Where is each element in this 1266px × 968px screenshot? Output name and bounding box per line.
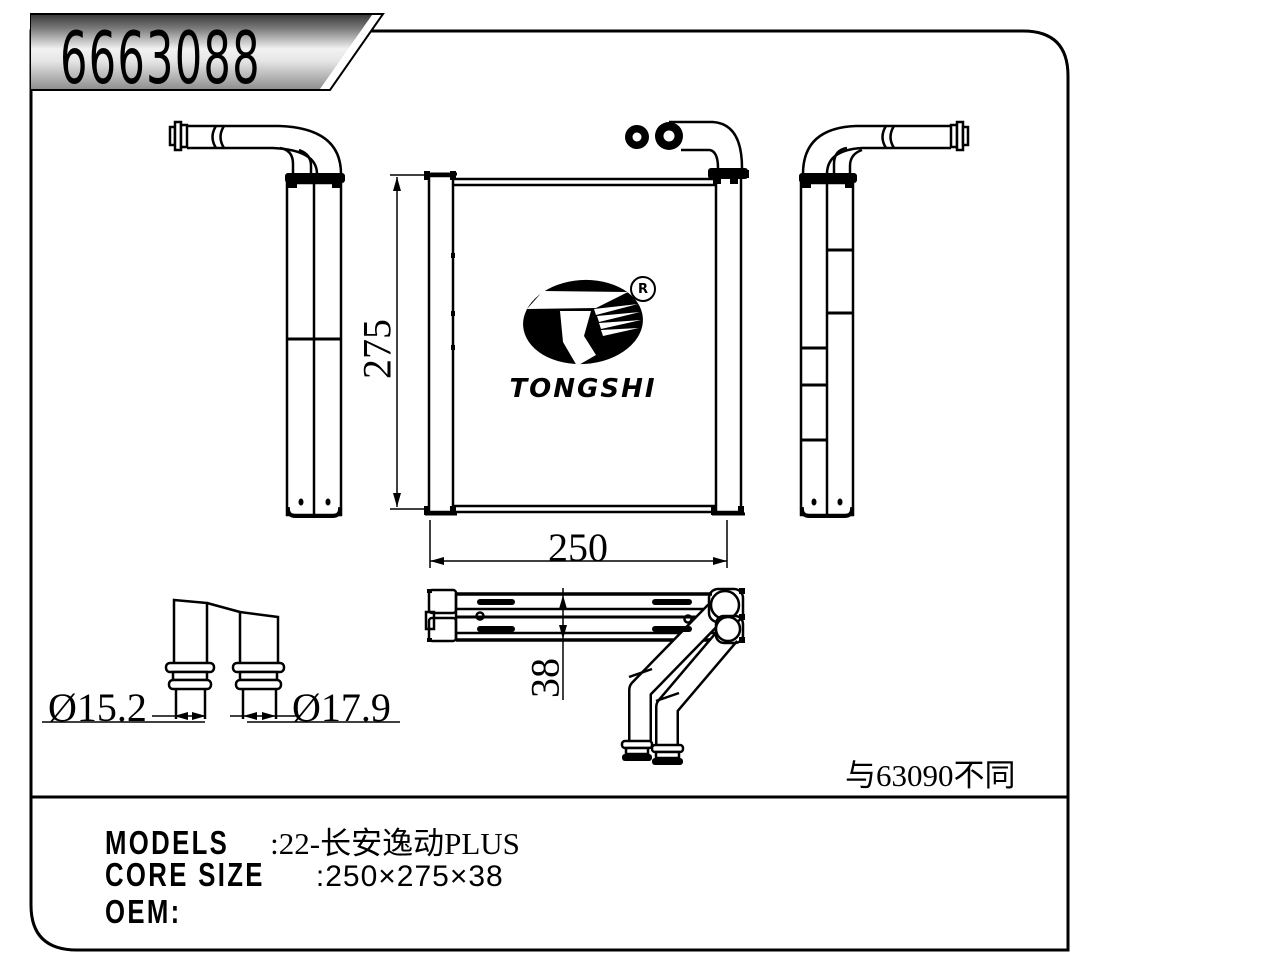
pipe-detail-view [166, 600, 284, 719]
drawing-border [31, 31, 1068, 950]
front-view [424, 122, 749, 515]
tongshi-logo-mark [520, 276, 646, 368]
spec-core-size-line: CORE SIZE :250×275×38 [105, 856, 504, 894]
dimension-core-depth: 38 [522, 658, 569, 698]
tongshi-wordmark: TONGSHI [505, 374, 661, 404]
spec-oem-line: OEM: [105, 893, 203, 931]
dimension-pipe-small: Ø15.2 [48, 684, 147, 731]
core-size-label: CORE SIZE [105, 856, 265, 894]
side-view-right [799, 122, 968, 516]
oem-label: OEM: [105, 893, 182, 931]
dimension-core-height: 275 [354, 319, 401, 379]
drawing-page: 6663088 275 250 38 Ø15.2 Ø17.9 与63090不同 … [0, 0, 1266, 968]
side-view-left [170, 122, 345, 516]
dimension-core-width: 250 [538, 524, 618, 571]
difference-note: 与63090不同 [845, 750, 1016, 795]
dimension-pipe-large: Ø17.9 [292, 684, 391, 731]
top-view [426, 588, 745, 765]
registered-trademark-icon: R [630, 276, 656, 302]
core-size-value: :250×275×38 [316, 860, 504, 894]
part-number: 6663088 [60, 16, 261, 100]
